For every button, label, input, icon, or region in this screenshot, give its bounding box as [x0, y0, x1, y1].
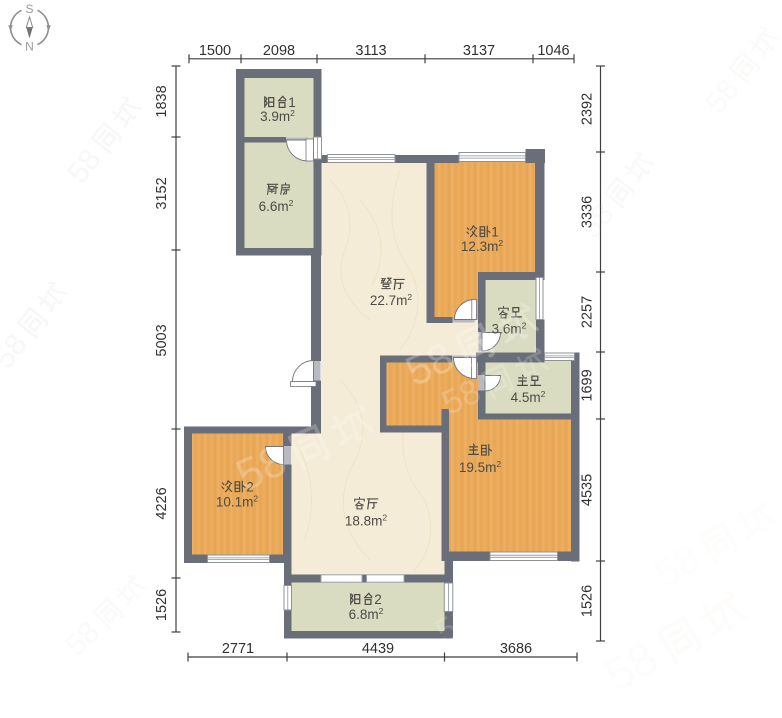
- svg-text:2771: 2771: [222, 641, 254, 657]
- svg-text:1500: 1500: [199, 43, 231, 59]
- svg-text:2392: 2392: [580, 93, 596, 125]
- svg-text:1046: 1046: [537, 43, 569, 59]
- svg-text:3152: 3152: [154, 177, 170, 209]
- svg-text:3686: 3686: [500, 641, 532, 657]
- svg-text:5003: 5003: [154, 324, 170, 356]
- svg-text:2257: 2257: [580, 296, 596, 328]
- svg-text:S: S: [25, 2, 33, 16]
- svg-text:6.8m2: 6.8m2: [349, 606, 384, 622]
- svg-text:4226: 4226: [154, 487, 170, 519]
- svg-text:19.5m2: 19.5m2: [459, 459, 502, 475]
- svg-text:3137: 3137: [463, 43, 495, 59]
- svg-text:6.6m2: 6.6m2: [259, 198, 294, 214]
- svg-text:2: 2: [374, 592, 382, 607]
- svg-text:4.5m2: 4.5m2: [511, 389, 546, 405]
- svg-text:1838: 1838: [154, 85, 170, 117]
- svg-text:3113: 3113: [355, 43, 386, 59]
- svg-text:1526: 1526: [154, 589, 170, 621]
- svg-text:18.8m2: 18.8m2: [345, 512, 388, 528]
- svg-text:1699: 1699: [580, 369, 596, 401]
- svg-text:12.3m2: 12.3m2: [461, 238, 504, 254]
- svg-text:3.9m2: 3.9m2: [260, 108, 295, 124]
- svg-text:1526: 1526: [580, 585, 596, 617]
- svg-text:4439: 4439: [362, 641, 394, 657]
- svg-text:4535: 4535: [580, 474, 596, 506]
- svg-text:N: N: [25, 40, 34, 54]
- svg-text:2098: 2098: [263, 43, 295, 59]
- svg-text:22.7m2: 22.7m2: [370, 292, 413, 308]
